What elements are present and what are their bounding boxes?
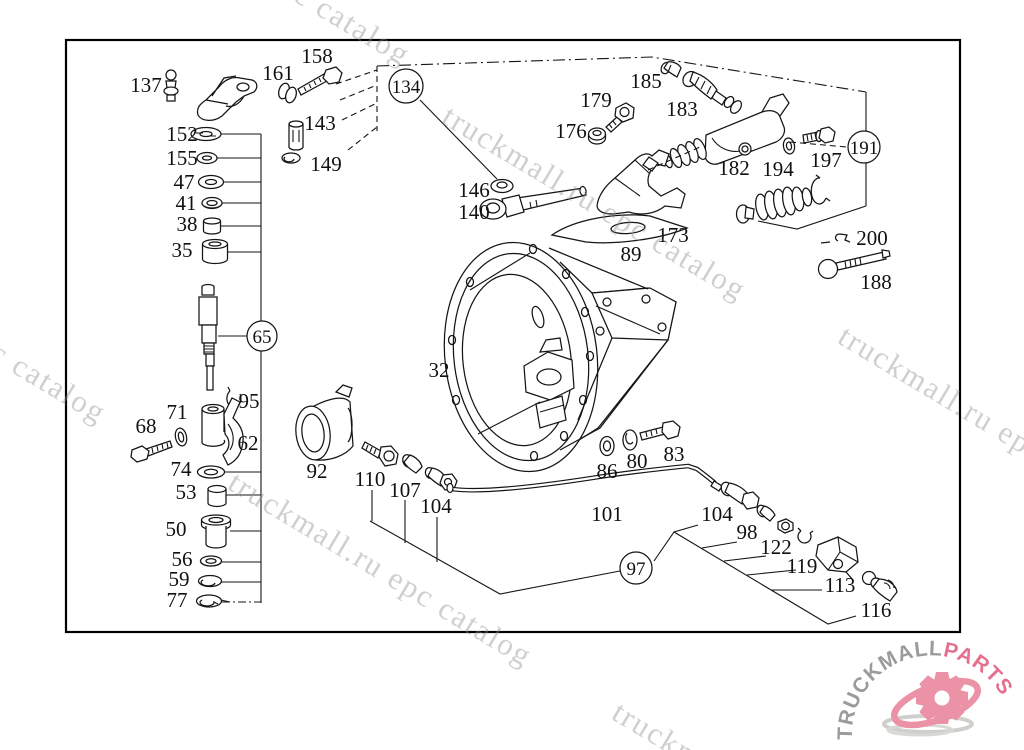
parts-diagram: 134 65 97 191 137 161 158 143 149 152 15…	[0, 0, 1024, 750]
label-83: 83	[664, 442, 685, 466]
label-155: 155	[166, 146, 198, 170]
label-140: 140	[458, 200, 490, 224]
label-104: 104	[420, 494, 452, 518]
part-47-washer	[199, 176, 224, 189]
label-38: 38	[177, 212, 198, 236]
part-146-washer	[491, 180, 513, 193]
truckmall-logo: TRUCKMALLPARTS	[834, 637, 1018, 740]
callout-191: 191	[848, 131, 880, 163]
part-59-ring	[199, 576, 222, 587]
callout-97-label: 97	[627, 559, 646, 580]
label-32: 32	[429, 358, 450, 382]
label-188: 188	[860, 270, 892, 294]
part-86-grommet	[600, 437, 614, 456]
logo-gear-icon	[916, 672, 968, 724]
part-80-washer	[623, 430, 637, 450]
label-194: 194	[762, 157, 794, 181]
watermark-tile-bottom: truckmall.ru epc catalog	[606, 694, 923, 750]
callout-65: 65	[247, 321, 277, 351]
label-71: 71	[167, 400, 188, 424]
label-183: 183	[666, 97, 698, 121]
label-35: 35	[172, 238, 193, 262]
label-179: 179	[580, 88, 612, 112]
label-182: 182	[718, 156, 750, 180]
label-77: 77	[167, 588, 188, 612]
label-200: 200	[856, 226, 888, 250]
label-104b: 104	[701, 502, 733, 526]
callout-97: 97	[620, 552, 652, 584]
label-197: 197	[810, 148, 842, 172]
label-50: 50	[166, 517, 187, 541]
part-41-ring	[202, 198, 222, 209]
label-74: 74	[171, 457, 193, 481]
label-161: 161	[262, 61, 294, 85]
callout-65-label: 65	[253, 327, 272, 348]
label-176: 176	[555, 119, 587, 143]
label-98: 98	[737, 520, 758, 544]
label-146: 146	[458, 178, 490, 202]
part-74-washer	[198, 466, 225, 478]
label-113: 113	[825, 573, 856, 597]
label-95: 95	[239, 389, 260, 413]
part-155-ring	[197, 153, 217, 164]
part-50-bushing	[202, 515, 231, 548]
label-53: 53	[176, 480, 197, 504]
label-62: 62	[238, 431, 259, 455]
label-119: 119	[787, 554, 818, 578]
label-185: 185	[630, 69, 662, 93]
label-92: 92	[307, 459, 328, 483]
label-116: 116	[861, 598, 892, 622]
part-56-washer	[201, 556, 222, 566]
callout-134-label: 134	[392, 77, 421, 98]
label-152: 152	[166, 122, 198, 146]
label-137: 137	[130, 73, 162, 97]
label-101: 101	[591, 502, 623, 526]
callout-191-label: 191	[850, 138, 879, 159]
label-107: 107	[389, 478, 421, 502]
label-158: 158	[301, 44, 333, 68]
label-110: 110	[355, 467, 386, 491]
callout-134: 134	[389, 69, 423, 103]
part-122-nut	[778, 519, 793, 533]
label-80: 80	[627, 449, 648, 473]
label-86: 86	[597, 459, 618, 483]
label-68: 68	[136, 414, 157, 438]
label-149: 149	[310, 152, 342, 176]
label-143: 143	[304, 111, 336, 135]
